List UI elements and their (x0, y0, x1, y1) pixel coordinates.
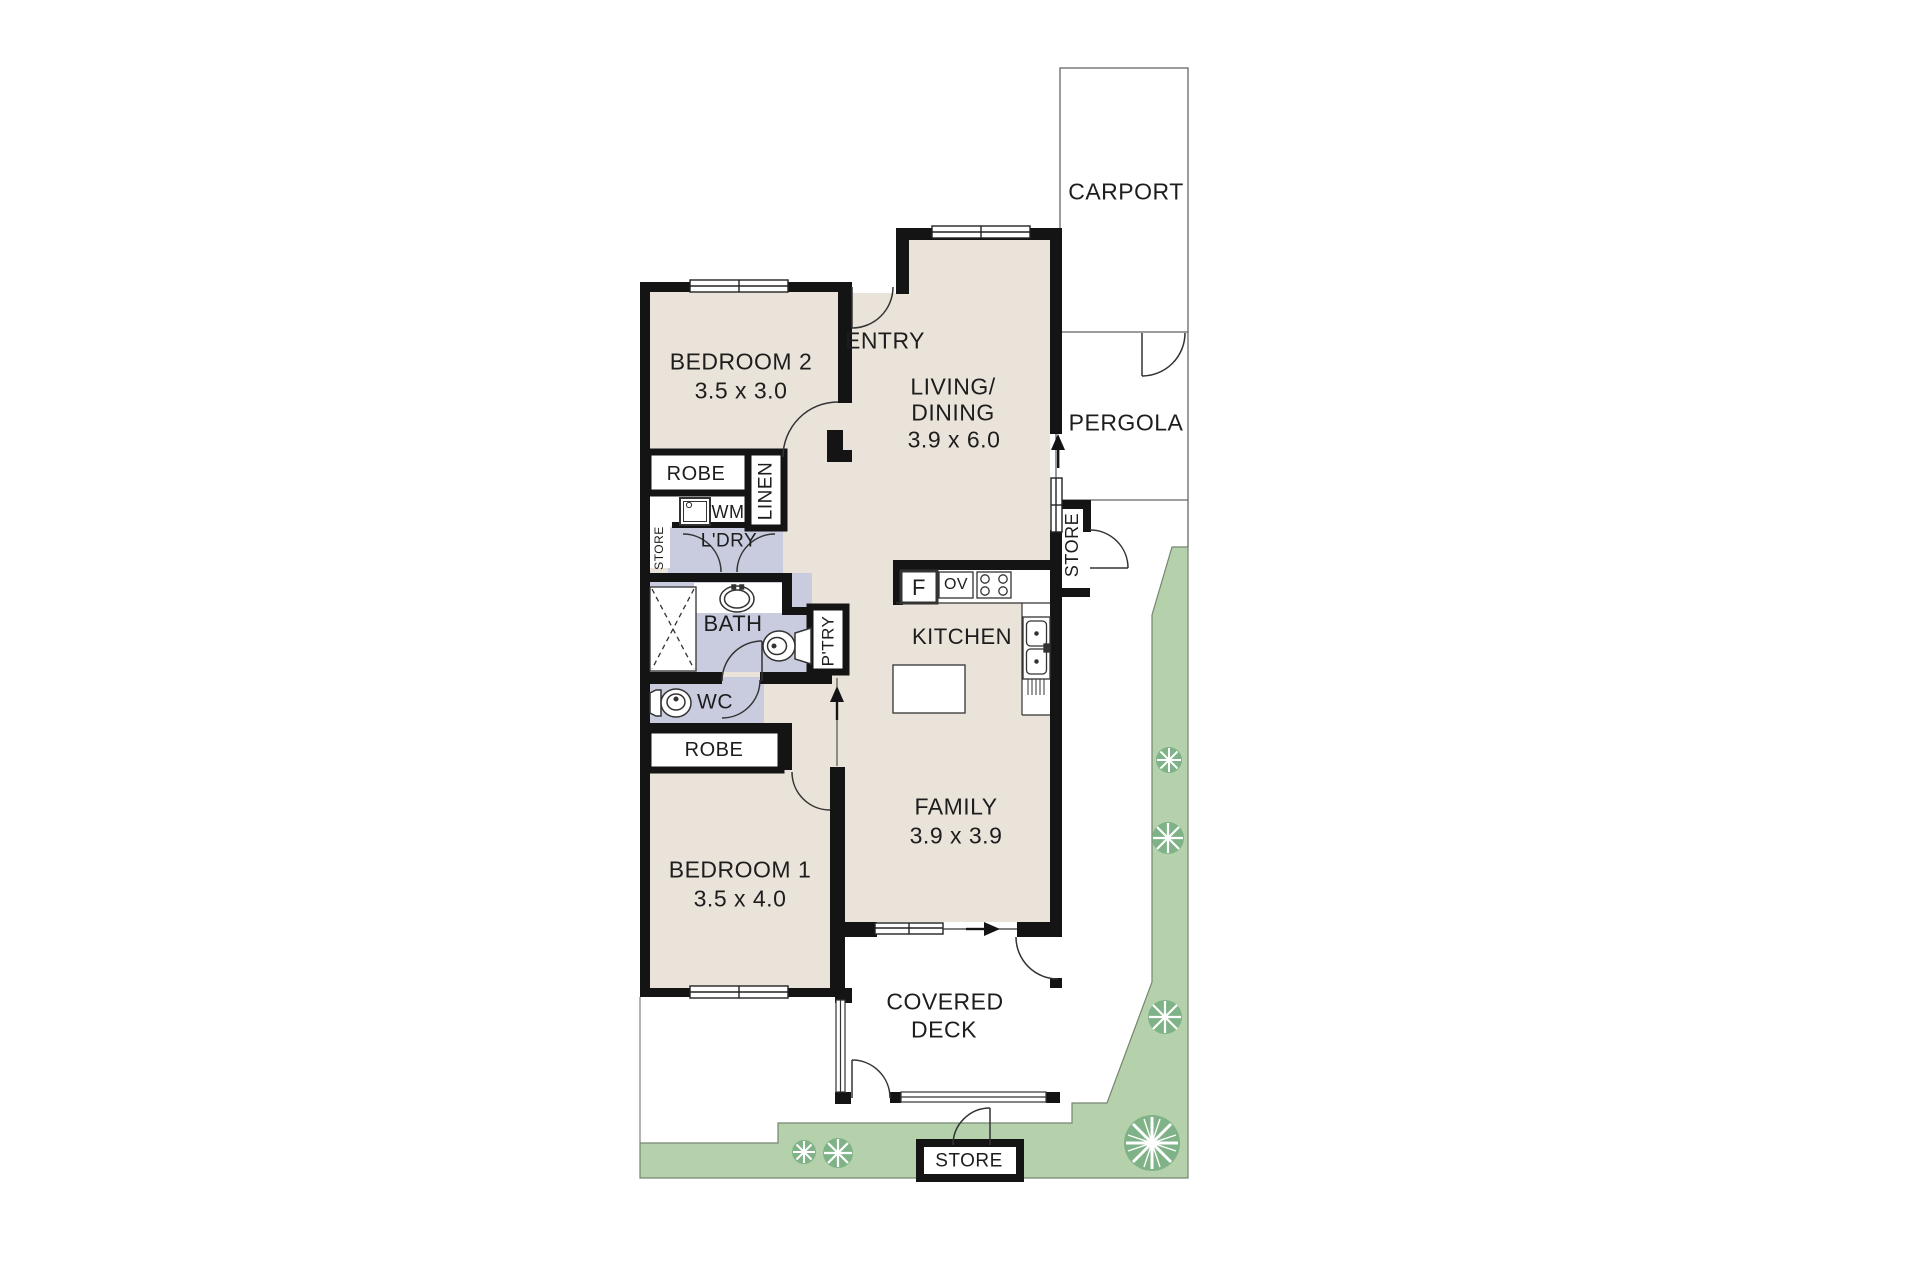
label-living-line2: DINING (911, 402, 995, 425)
label-bath: BATH (703, 613, 762, 635)
plant-strip-2 (1152, 822, 1184, 854)
label-garden-store: STORE (935, 1152, 1003, 1171)
shower-icon (650, 587, 696, 671)
deck-door-left (852, 1060, 890, 1098)
label-laundry-store: STORE (653, 526, 665, 570)
label-wc: WC (697, 692, 733, 713)
label-living-line1: LIVING/ (910, 376, 995, 399)
window-living (932, 226, 1030, 238)
label-pantry: P'TRY (820, 616, 837, 667)
kitchen-island (893, 665, 965, 713)
label-pergola: PERGOLA (1069, 412, 1184, 435)
floor-plan: CARPORT PERGOLA ENTRY LIVING/ DINING 3.9… (0, 0, 1920, 1280)
label-bedroom2: BEDROOM 2 (670, 351, 813, 374)
plant-strip-1 (1156, 747, 1182, 773)
label-family-dim: 3.9 x 3.9 (910, 825, 1003, 848)
label-deck-line2: DECK (911, 1019, 977, 1042)
cooktop-icon (977, 572, 1011, 598)
plant-small-2 (823, 1138, 853, 1168)
pergola-store-door (1090, 530, 1128, 568)
toilet-icon-wc (650, 689, 691, 717)
window-bed1 (690, 986, 788, 998)
label-carport: CARPORT (1068, 181, 1184, 204)
label-oven: OV (944, 577, 968, 593)
label-laundry: L'DRY (701, 532, 757, 551)
plant-large (1124, 1115, 1180, 1171)
window-family (875, 923, 943, 934)
label-robe-bed1: ROBE (685, 740, 744, 760)
arrow-family-deck (966, 922, 1000, 936)
carport-door (1142, 333, 1185, 376)
arrow-living-side (1051, 434, 1065, 468)
label-wm: WM (712, 503, 745, 521)
toilet-icon-bath (763, 628, 811, 664)
plant-strip-3 (1148, 1000, 1182, 1034)
label-bedroom1: BEDROOM 1 (669, 859, 812, 882)
window-living-side (1051, 478, 1062, 532)
label-kitchen: KITCHEN (912, 626, 1012, 648)
plant-small-1 (792, 1140, 816, 1164)
label-family: FAMILY (914, 796, 997, 819)
label-entry: ENTRY (845, 330, 925, 353)
deck-railing (836, 1000, 1046, 1102)
label-bedroom1-dim: 3.5 x 4.0 (694, 888, 787, 911)
label-robe-bed2: ROBE (667, 464, 726, 484)
label-living-dim: 3.9 x 6.0 (908, 429, 1001, 452)
washer-icon (680, 498, 710, 525)
label-fridge: F (912, 577, 926, 599)
window-bed2 (690, 280, 788, 292)
deck-door-family (1016, 937, 1058, 979)
label-bedroom2-dim: 3.5 x 3.0 (695, 380, 788, 403)
label-external-store: STORE (1063, 513, 1081, 577)
basin-icon (720, 585, 754, 612)
label-deck-line1: COVERED (886, 991, 1003, 1014)
label-linen: LINEN (757, 462, 776, 520)
